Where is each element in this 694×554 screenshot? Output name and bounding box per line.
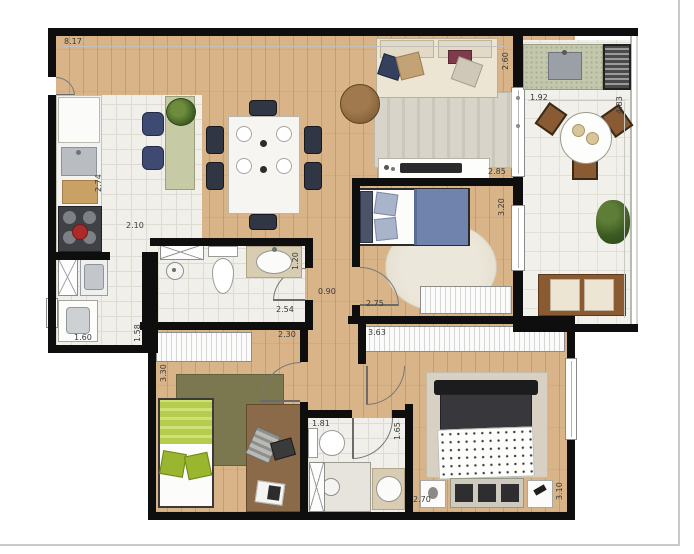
exterior-area-bottom-left — [0, 353, 148, 554]
bathroom2-door-leaf — [352, 418, 354, 458]
bench-cushion — [584, 279, 614, 311]
bedroom2-pillow — [184, 452, 212, 480]
wall-bath1-bedroom2 — [140, 322, 313, 330]
sliding-door-handle — [516, 124, 520, 128]
bedroom2-pillow — [159, 450, 187, 478]
bar-stool — [142, 146, 164, 170]
barbecue-grill — [603, 44, 631, 90]
round-pouf — [340, 84, 380, 124]
wall-bottom — [148, 512, 575, 520]
dim-bedroom1-width: 2.75 — [366, 300, 384, 308]
wall-left-lower — [48, 95, 56, 353]
dim-bedroom2-width: 2.30 — [278, 331, 296, 339]
balcony-sink — [548, 52, 582, 80]
dim-balcony-counter-side: 2.60 — [502, 52, 510, 70]
wall-bedroom1-left-upper — [352, 186, 360, 267]
laundry-cabinet — [58, 258, 78, 296]
dim-kitchen-counter-depth: 2.74 — [95, 174, 103, 192]
wall-bedroom1-top — [352, 178, 523, 186]
dresser-drawer — [478, 484, 496, 502]
red-pot — [72, 224, 88, 240]
sliding-door-handle — [516, 96, 520, 100]
wall-master-right-lower — [567, 440, 575, 520]
dim-tv-wall-width: 2.85 — [488, 168, 506, 176]
plate — [236, 126, 252, 142]
wall-bathroom2-top-right — [392, 410, 413, 418]
master-duvet — [437, 426, 535, 479]
bathroom1-door-leaf — [273, 299, 305, 301]
frame-line-right — [678, 0, 680, 546]
laundry-tub-basin — [84, 264, 104, 290]
dim-kitchen-width: 2.10 — [126, 222, 144, 230]
kitchen-faucet — [76, 150, 81, 155]
centerpiece — [260, 166, 267, 173]
potted-plant — [166, 98, 196, 126]
console-decor — [384, 165, 389, 170]
nightstand-right — [527, 480, 553, 508]
plate — [276, 126, 292, 142]
dining-chair — [249, 214, 277, 230]
bedroom2-wardrobe — [156, 332, 252, 362]
wall-bathroom1-right-upper — [305, 238, 313, 268]
bedroom1-pillow-dark — [360, 191, 373, 243]
burner — [83, 211, 96, 224]
wall-master-left — [405, 404, 413, 512]
wall-bathroom2-top-left — [308, 410, 352, 418]
bedroom2-door-leaf — [260, 400, 300, 402]
dim-master-wardrobe-width: 3.63 — [368, 329, 386, 337]
wall-kitchen-laundry — [48, 252, 110, 260]
refrigerator — [58, 97, 100, 143]
balcony-sliding-door — [511, 87, 525, 177]
dim-hall-width: 0.90 — [318, 288, 336, 296]
balcony-glass-railing — [630, 36, 638, 332]
desk-paper-item — [267, 485, 281, 501]
bedroom1-blanket — [414, 189, 468, 245]
toilet1-tank — [208, 246, 238, 257]
bar-stool — [142, 112, 164, 136]
wall-top — [48, 28, 638, 36]
wall-living-balcony-upper — [513, 36, 523, 87]
dining-chair — [206, 162, 224, 190]
master-blanket-dark — [440, 394, 532, 430]
living-rug — [374, 92, 512, 168]
toilet2-tank — [308, 428, 318, 458]
vanity2-sink — [376, 476, 402, 502]
wall-master-nook-left — [358, 324, 366, 364]
plate — [236, 158, 252, 174]
centerpiece — [260, 140, 267, 147]
dim-line-top — [62, 46, 505, 47]
dim-bath1-depth: 1.20 — [292, 252, 300, 270]
wall-bedroom2-right-lower — [300, 402, 308, 512]
wall-bathroom1-top — [150, 238, 313, 246]
bedroom1-window — [511, 205, 525, 271]
balcony-faucet — [562, 50, 567, 55]
bedroom2-blanket — [160, 400, 212, 444]
console-decor — [391, 167, 395, 171]
vanity1-sink — [256, 250, 292, 274]
dresser-drawer — [455, 484, 473, 502]
exterior-area-bottom-right — [575, 332, 678, 554]
vanity1-faucet — [272, 247, 277, 252]
bathroom2-cabinet — [309, 462, 325, 512]
table-plate — [586, 132, 599, 145]
television — [400, 163, 462, 173]
dining-chair — [304, 126, 322, 154]
washer-drum — [66, 307, 90, 334]
toilet2-bowl — [319, 430, 345, 456]
dim-bath1-width: 2.54 — [276, 306, 294, 314]
bathroom1-cabinet — [160, 244, 204, 260]
dim-bath2-width: 1.81 — [312, 420, 330, 428]
dim-line-balcony-h — [624, 102, 625, 318]
bedroom1-pillow — [374, 217, 398, 241]
plate — [276, 158, 292, 174]
wall-bedroom1-bottom — [348, 316, 575, 324]
master-window — [565, 358, 577, 440]
dining-chair — [249, 100, 277, 116]
dim-master-width: 2.70 — [413, 496, 431, 504]
dim-bath2-depth: 1.65 — [394, 422, 402, 440]
wall-bedroom2-left — [148, 349, 156, 520]
frame-line-bottom — [0, 544, 680, 546]
shower-head-center — [172, 268, 176, 272]
dim-balcony-depth: 4.83 — [616, 96, 624, 114]
dining-chair — [304, 162, 322, 190]
dim-bedroom1-depth: 3.20 — [498, 198, 506, 216]
dresser-drawer — [501, 484, 519, 502]
dim-laundry-depth: 1.58 — [134, 324, 142, 342]
wall-bedroom2-right-upper — [300, 330, 308, 362]
bedroom1-wardrobe — [420, 286, 512, 314]
burner — [63, 211, 76, 224]
dining-chair — [206, 126, 224, 154]
bench-cushion — [550, 279, 580, 311]
dim-living-top-width: 8.17 — [64, 38, 82, 46]
wall-left-upper — [48, 36, 56, 77]
dim-laundry-width: 1.60 — [74, 334, 92, 342]
wall-balcony-bottom — [513, 324, 638, 332]
master-door-leaf — [366, 366, 368, 404]
floor-plan: 8.17 2.74 2.10 1.60 1.58 2.54 1.20 0.90 … — [0, 0, 694, 554]
dim-master-depth: 3.10 — [556, 482, 564, 500]
dim-bedroom2-depth: 3.30 — [160, 364, 168, 382]
table-plate — [572, 124, 585, 137]
bedroom1-pillow — [374, 192, 399, 217]
wall-bedroom1-left-lower — [352, 305, 360, 316]
cutting-board — [62, 180, 98, 204]
master-headboard — [434, 380, 538, 395]
wall-laundry-bath1 — [142, 252, 158, 353]
dim-balcony-width: 1.92 — [530, 94, 548, 102]
